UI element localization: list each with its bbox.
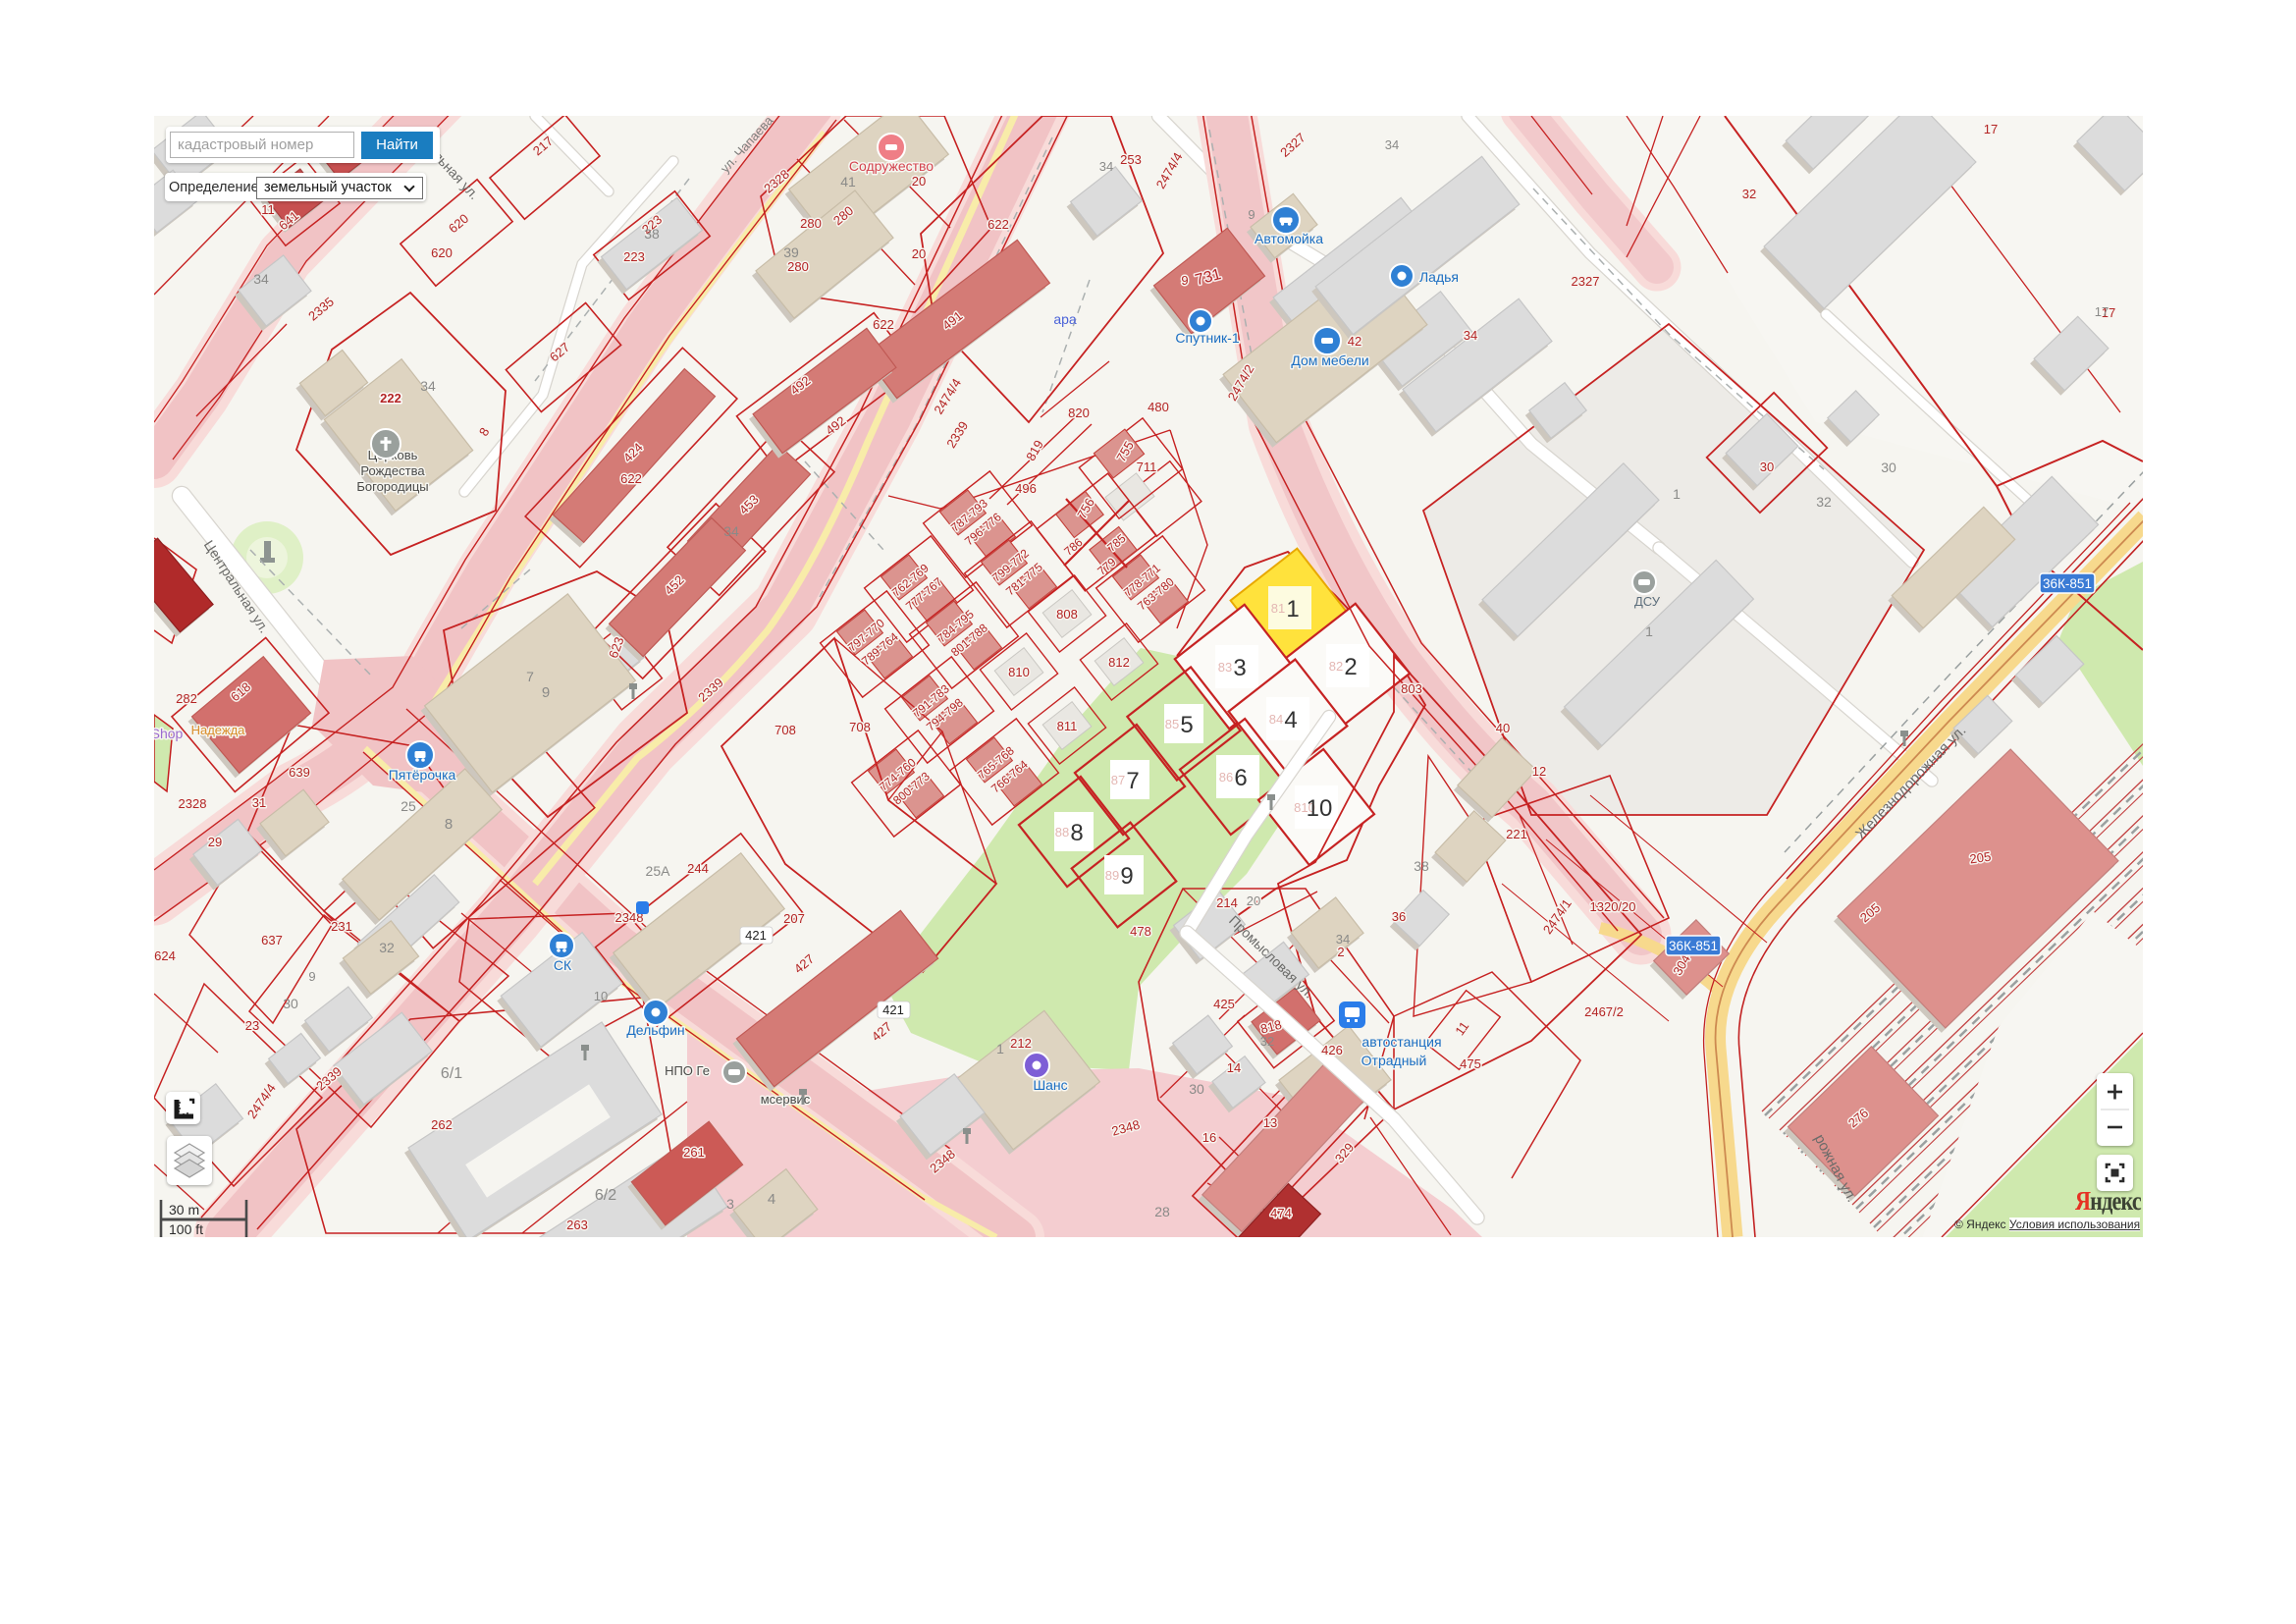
svg-text:478: 478 <box>1130 924 1151 939</box>
svg-text:38: 38 <box>1414 858 1429 874</box>
svg-text:9: 9 <box>542 684 550 701</box>
svg-text:88: 88 <box>1055 825 1069 839</box>
svg-text:ДСУ: ДСУ <box>1634 594 1661 609</box>
svg-text:496: 496 <box>1015 481 1037 496</box>
svg-text:808: 808 <box>1056 607 1078 622</box>
svg-text:214: 214 <box>1216 895 1238 910</box>
svg-text:20: 20 <box>912 174 926 189</box>
svg-text:83: 83 <box>1218 660 1232 675</box>
svg-text:39: 39 <box>783 244 799 260</box>
svg-text:280: 280 <box>800 216 822 231</box>
svg-text:803: 803 <box>1401 681 1422 696</box>
svg-text:Шанс: Шанс <box>1033 1077 1067 1093</box>
svg-text:2328: 2328 <box>179 796 207 811</box>
svg-text:30: 30 <box>1881 460 1896 475</box>
svg-text:23: 23 <box>245 1018 259 1033</box>
svg-text:86: 86 <box>1219 770 1233 785</box>
svg-text:1: 1 <box>1286 596 1299 623</box>
svg-text:30: 30 <box>1760 460 1774 474</box>
svg-text:7: 7 <box>526 669 534 684</box>
svg-text:263: 263 <box>566 1218 588 1232</box>
svg-text:1: 1 <box>996 1041 1004 1056</box>
svg-text:261: 261 <box>683 1145 705 1160</box>
svg-text:38: 38 <box>644 226 660 242</box>
svg-text:Спутник-1: Спутник-1 <box>1175 330 1239 346</box>
svg-text:42: 42 <box>1348 334 1362 349</box>
svg-text:30: 30 <box>283 996 298 1011</box>
svg-text:36: 36 <box>1392 909 1406 924</box>
svg-text:7: 7 <box>1126 768 1139 794</box>
svg-text:82: 82 <box>1329 659 1343 674</box>
svg-text:622: 622 <box>873 317 894 332</box>
svg-text:20: 20 <box>1247 893 1260 908</box>
svg-text:17: 17 <box>1984 122 1998 136</box>
svg-text:1: 1 <box>1673 486 1681 502</box>
svg-text:25: 25 <box>400 798 416 814</box>
svg-text:14: 14 <box>1227 1060 1241 1075</box>
svg-text:34: 34 <box>1464 328 1477 343</box>
svg-text:622: 622 <box>988 217 1009 232</box>
svg-text:421: 421 <box>745 928 767 943</box>
svg-text:262: 262 <box>431 1117 453 1132</box>
svg-text:Дом мебели: Дом мебели <box>1291 352 1368 368</box>
svg-text:10: 10 <box>594 989 608 1003</box>
svg-text:34: 34 <box>1385 137 1399 152</box>
svg-text:34: 34 <box>1336 932 1350 947</box>
svg-text:221: 221 <box>1506 827 1527 841</box>
svg-text:30 m: 30 m <box>169 1202 199 1218</box>
svg-text:34: 34 <box>1099 159 1113 174</box>
svg-text:36К-851: 36К-851 <box>2043 576 2092 591</box>
svg-text:25А: 25А <box>646 863 671 879</box>
svg-text:622: 622 <box>620 471 642 486</box>
svg-text:426: 426 <box>1321 1043 1343 1057</box>
svg-text:Shop: Shop <box>151 726 184 741</box>
svg-text:1: 1 <box>1645 623 1653 639</box>
svg-text:4: 4 <box>768 1191 775 1208</box>
svg-text:Отрадный: Отрадный <box>1362 1053 1427 1068</box>
svg-text:20: 20 <box>912 246 926 261</box>
svg-text:9: 9 <box>308 969 315 984</box>
svg-text:36К-851: 36К-851 <box>1669 939 1718 953</box>
svg-text:8: 8 <box>1070 820 1083 846</box>
svg-text:820: 820 <box>1068 406 1090 420</box>
svg-text:253: 253 <box>1120 152 1142 167</box>
svg-text:6/2: 6/2 <box>595 1187 616 1204</box>
svg-text:624: 624 <box>154 948 176 963</box>
svg-text:34: 34 <box>723 523 739 539</box>
svg-text:474: 474 <box>1270 1206 1292 1220</box>
svg-text:13: 13 <box>1263 1115 1277 1130</box>
svg-text:НПО Ге: НПО Ге <box>665 1063 710 1078</box>
svg-text:2327: 2327 <box>1572 274 1600 289</box>
svg-text:32: 32 <box>1816 494 1832 510</box>
svg-text:4: 4 <box>1284 707 1297 733</box>
svg-text:84: 84 <box>1269 712 1283 727</box>
svg-text:475: 475 <box>1460 1056 1481 1071</box>
svg-text:Автомойка: Автомойка <box>1255 231 1323 246</box>
svg-text:2: 2 <box>1337 945 1344 959</box>
svg-text:708: 708 <box>849 720 871 734</box>
svg-text:810: 810 <box>1008 665 1030 679</box>
svg-text:Надежда: Надежда <box>191 723 246 737</box>
svg-text:32: 32 <box>1260 1034 1274 1049</box>
svg-text:автостанция: автостанция <box>1362 1034 1441 1050</box>
svg-text:9: 9 <box>1181 273 1188 288</box>
svg-text:12: 12 <box>1532 764 1546 779</box>
svg-text:223: 223 <box>623 249 645 264</box>
svg-text:34: 34 <box>253 271 269 287</box>
svg-text:812: 812 <box>1108 655 1130 670</box>
svg-text:10: 10 <box>1307 795 1333 822</box>
svg-text:231: 231 <box>331 919 352 934</box>
svg-text:30: 30 <box>1189 1081 1204 1097</box>
svg-text:31: 31 <box>252 795 266 810</box>
svg-text:9: 9 <box>1248 207 1255 222</box>
svg-text:5: 5 <box>1180 712 1193 738</box>
svg-text:3: 3 <box>1233 655 1246 681</box>
svg-text:29: 29 <box>208 835 222 849</box>
svg-text:2: 2 <box>1344 654 1357 680</box>
svg-text:421: 421 <box>882 1002 904 1017</box>
svg-text:8: 8 <box>445 816 453 833</box>
svg-text:2467/2: 2467/2 <box>1584 1004 1624 1019</box>
svg-text:28: 28 <box>1154 1204 1170 1219</box>
svg-text:811: 811 <box>1057 719 1078 733</box>
svg-text:41: 41 <box>840 174 856 189</box>
svg-text:11: 11 <box>261 202 275 217</box>
svg-text:282: 282 <box>176 691 197 706</box>
svg-text:9: 9 <box>1120 863 1133 890</box>
svg-text:Содружество: Содружество <box>849 158 934 174</box>
svg-text:244: 244 <box>687 861 709 876</box>
svg-text:480: 480 <box>1148 400 1169 414</box>
svg-text:32: 32 <box>379 940 395 955</box>
svg-text:17: 17 <box>2095 304 2109 319</box>
svg-text:708: 708 <box>774 723 796 737</box>
svg-text:212: 212 <box>1010 1036 1032 1051</box>
svg-text:32: 32 <box>1742 187 1756 201</box>
svg-text:87: 87 <box>1111 773 1125 787</box>
svg-text:СК: СК <box>554 957 572 973</box>
svg-text:425: 425 <box>1213 997 1235 1011</box>
svg-text:637: 637 <box>261 933 283 947</box>
svg-text:6/1: 6/1 <box>441 1065 462 1082</box>
svg-text:34: 34 <box>420 378 436 394</box>
svg-text:222: 222 <box>380 391 401 406</box>
svg-text:85: 85 <box>1165 717 1179 731</box>
svg-text:205: 205 <box>1969 849 1993 867</box>
svg-text:ара: ара <box>1053 311 1077 327</box>
svg-text:207: 207 <box>783 911 805 926</box>
svg-text:Дельфин: Дельфин <box>626 1022 684 1038</box>
svg-text:3: 3 <box>726 1196 734 1212</box>
svg-text:639: 639 <box>289 765 310 780</box>
svg-text:89: 89 <box>1105 868 1119 883</box>
svg-text:711: 711 <box>1137 460 1157 474</box>
svg-text:280: 280 <box>787 259 809 274</box>
svg-text:100 ft: 100 ft <box>169 1221 203 1237</box>
svg-text:1320/20: 1320/20 <box>1590 899 1636 914</box>
svg-text:Богородицы: Богородицы <box>356 479 428 494</box>
svg-text:620: 620 <box>431 245 453 260</box>
svg-text:Рождества: Рождества <box>360 463 425 478</box>
svg-text:6: 6 <box>1234 765 1247 791</box>
svg-text:Пятёрочка: Пятёрочка <box>389 767 456 783</box>
svg-text:81: 81 <box>1271 601 1285 616</box>
svg-text:40: 40 <box>1496 721 1510 735</box>
svg-text:16: 16 <box>1202 1130 1216 1145</box>
svg-text:Ладья: Ладья <box>1419 269 1459 285</box>
